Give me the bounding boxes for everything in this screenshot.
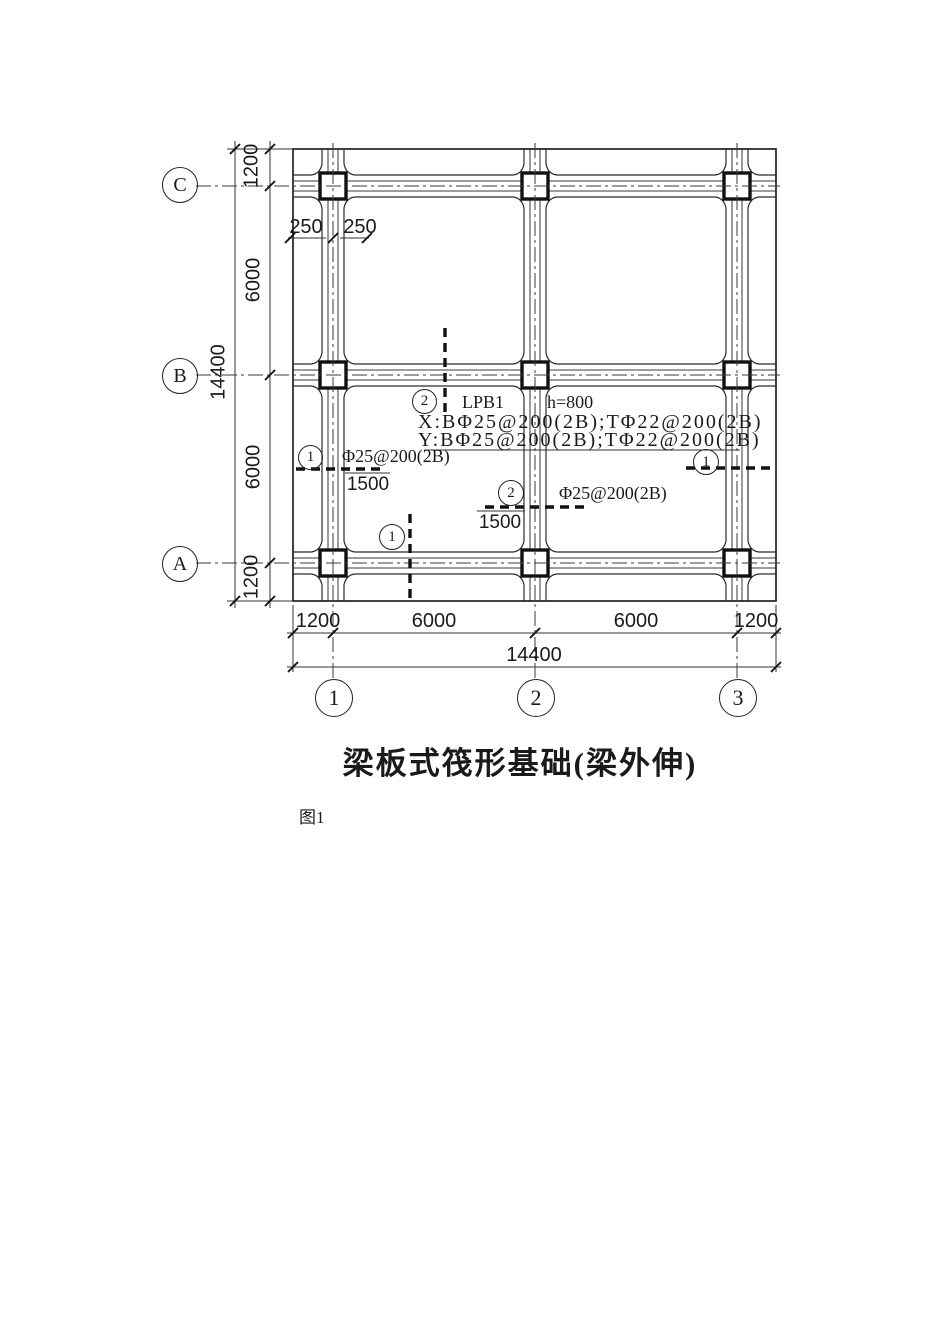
grid-label-b: B bbox=[173, 365, 186, 388]
grid-label-a: A bbox=[173, 553, 187, 576]
section-mark-1-right: 1 bbox=[693, 449, 719, 475]
grid-bubble-row-a: A bbox=[162, 546, 198, 582]
dim-bottom-seg-1200-left: 1200 bbox=[296, 610, 341, 633]
section-mark-2-mid: 2 bbox=[498, 480, 524, 506]
grid-bubble-col-3: 3 bbox=[719, 679, 757, 717]
grid-label-3: 3 bbox=[733, 685, 744, 711]
section-1-left-extension: 1500 bbox=[347, 474, 389, 496]
dim-bottom-seg-6000-right: 6000 bbox=[614, 610, 659, 633]
foundation-plan-linework bbox=[0, 0, 950, 1344]
dim-bottom-seg-6000-left: 6000 bbox=[412, 610, 457, 633]
section-mark-1-left: 1 bbox=[298, 445, 323, 470]
dim-left-seg-1200-bottom: 1200 bbox=[241, 555, 264, 600]
section-1-left-label: 1 bbox=[307, 449, 315, 466]
grid-label-c: C bbox=[173, 174, 186, 197]
section-2-mid-extension: 1500 bbox=[479, 512, 521, 534]
section-1-right-label: 1 bbox=[702, 454, 710, 471]
drawing-title: 梁板式筏形基础(梁外伸) bbox=[343, 738, 698, 783]
dim-left-total: 14400 bbox=[208, 344, 231, 400]
section-2-top-label: 2 bbox=[421, 393, 429, 410]
grid-label-2: 2 bbox=[531, 685, 542, 711]
section-1-bottom-label: 1 bbox=[388, 529, 396, 546]
section-2-mid-label: 2 bbox=[507, 485, 515, 502]
dim-beam-offset-left: 250 bbox=[289, 216, 322, 239]
dim-left-seg-6000-lower: 6000 bbox=[243, 445, 266, 490]
dim-left-seg-1200-top: 1200 bbox=[241, 144, 264, 189]
grid-bubble-col-2: 2 bbox=[517, 679, 555, 717]
grid-bubble-row-c: C bbox=[162, 167, 198, 203]
section-2-mid-rebar: Φ25@200(2B) bbox=[559, 483, 667, 504]
section-1-left-rebar: Φ25@200(2B) bbox=[342, 446, 450, 467]
dim-bottom-total: 14400 bbox=[506, 644, 562, 667]
grid-label-1: 1 bbox=[329, 685, 340, 711]
dim-bottom-seg-1200-right: 1200 bbox=[734, 610, 779, 633]
grid-bubble-row-b: B bbox=[162, 358, 198, 394]
foundation-plan-page: C B A 1 2 3 1200 6000 6000 1200 14400 12… bbox=[0, 0, 950, 1344]
grid-bubble-col-1: 1 bbox=[315, 679, 353, 717]
dim-left-seg-6000-upper: 6000 bbox=[243, 258, 266, 303]
dim-beam-offset-right: 250 bbox=[343, 216, 376, 239]
slab-label: LPB1 bbox=[462, 392, 504, 413]
slab-thickness: h=800 bbox=[547, 392, 593, 413]
section-mark-1-bottom: 1 bbox=[379, 524, 405, 550]
figure-caption: 图1 bbox=[299, 803, 325, 828]
